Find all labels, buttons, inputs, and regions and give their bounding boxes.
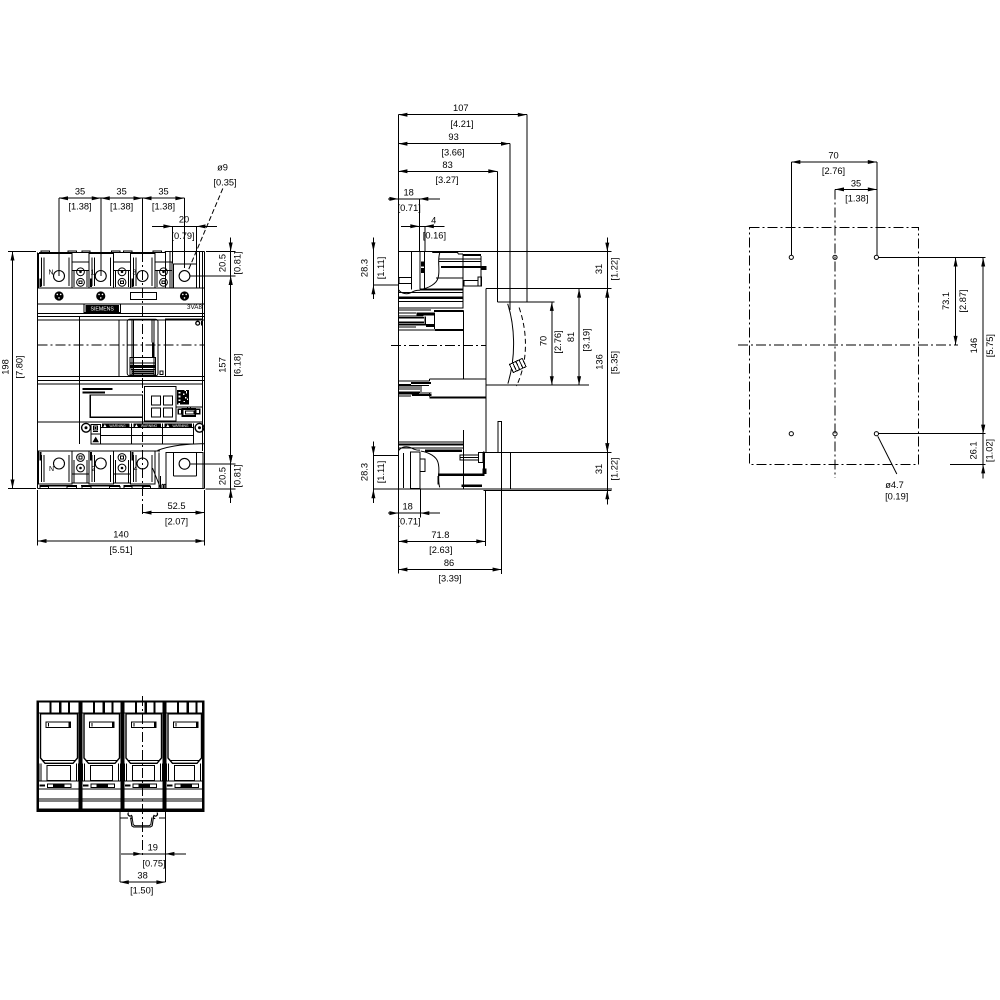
svg-text:[1.38]: [1.38] <box>110 202 133 212</box>
svg-text:3: 3 <box>133 270 137 277</box>
svg-text:83: 83 <box>442 160 452 170</box>
svg-text:[0.79]: [0.79] <box>171 231 194 241</box>
svg-text:[3.27]: [3.27] <box>435 175 458 185</box>
svg-text:[1.38]: [1.38] <box>845 193 868 203</box>
svg-text:35: 35 <box>116 187 126 197</box>
svg-text:136: 136 <box>594 354 604 370</box>
svg-text:[0.81]: [0.81] <box>233 251 243 274</box>
svg-text:[0.75]: [0.75] <box>142 858 165 868</box>
svg-text:31: 31 <box>594 464 604 474</box>
svg-text:107: 107 <box>453 103 469 113</box>
svg-text:1: 1 <box>91 270 95 277</box>
svg-text:198: 198 <box>1 359 11 375</box>
svg-text:38: 38 <box>137 871 147 881</box>
svg-text:[0.71]: [0.71] <box>397 517 420 527</box>
svg-text:[3.39]: [3.39] <box>438 573 461 583</box>
svg-text:146: 146 <box>969 338 979 354</box>
svg-text:20: 20 <box>179 214 189 224</box>
svg-text:71.8: 71.8 <box>431 530 449 540</box>
svg-text:ø4.7: ø4.7 <box>885 480 904 490</box>
svg-text:[3.66]: [3.66] <box>441 148 464 158</box>
svg-text:35: 35 <box>851 178 861 188</box>
svg-text:ø9: ø9 <box>217 163 228 173</box>
svg-text:N: N <box>48 270 53 277</box>
svg-text:18: 18 <box>403 502 413 512</box>
svg-text:81: 81 <box>566 332 576 342</box>
svg-text:[0.19]: [0.19] <box>885 492 908 502</box>
svg-text:[2.07]: [2.07] <box>165 517 188 527</box>
svg-text:35: 35 <box>75 187 85 197</box>
svg-text:20.5: 20.5 <box>218 254 228 272</box>
svg-text:93: 93 <box>448 132 458 142</box>
svg-text:[2.63]: [2.63] <box>429 545 452 555</box>
svg-text:73.1: 73.1 <box>941 292 951 310</box>
svg-text:[1.11]: [1.11] <box>376 461 386 484</box>
svg-text:[0.81]: [0.81] <box>233 464 243 487</box>
svg-text:26.1: 26.1 <box>968 441 978 459</box>
svg-text:[7.80]: [7.80] <box>15 355 25 378</box>
svg-text:70: 70 <box>828 151 838 161</box>
svg-text:28.3: 28.3 <box>360 259 370 277</box>
svg-text:[5.35]: [5.35] <box>610 351 620 374</box>
svg-text:N: N <box>49 466 54 473</box>
svg-text:[4.21]: [4.21] <box>450 119 473 129</box>
svg-text:4: 4 <box>134 466 138 473</box>
svg-text:140: 140 <box>113 530 129 540</box>
svg-text:[2.76]: [2.76] <box>553 330 563 353</box>
svg-text:[0.71]: [0.71] <box>398 203 421 213</box>
svg-text:2: 2 <box>92 466 96 473</box>
svg-text:[1.38]: [1.38] <box>68 202 91 212</box>
svg-text:[0.16]: [0.16] <box>423 231 446 241</box>
svg-text:18: 18 <box>404 187 414 197</box>
svg-text:157: 157 <box>218 357 228 373</box>
svg-text:[1.22]: [1.22] <box>610 457 620 480</box>
svg-text:3VA8: 3VA8 <box>187 304 202 311</box>
svg-text:[2.87]: [2.87] <box>958 289 968 312</box>
svg-text:[1.50]: [1.50] <box>130 886 153 896</box>
svg-text:52.5: 52.5 <box>167 501 185 511</box>
svg-text:[1.11]: [1.11] <box>376 257 386 280</box>
svg-text:[5.51]: [5.51] <box>109 545 132 555</box>
svg-text:4: 4 <box>431 215 436 225</box>
svg-text:[3.19]: [3.19] <box>582 328 592 351</box>
svg-text:[0.35]: [0.35] <box>213 178 236 188</box>
svg-text:31: 31 <box>594 264 604 274</box>
svg-text:[5.75]: [5.75] <box>985 334 995 357</box>
svg-text:[1.38]: [1.38] <box>152 202 175 212</box>
svg-text:86: 86 <box>444 558 454 568</box>
svg-text:35: 35 <box>158 187 168 197</box>
svg-text:28.3: 28.3 <box>360 463 370 481</box>
svg-text:19: 19 <box>148 842 158 852</box>
svg-text:[1.02]: [1.02] <box>985 439 995 462</box>
svg-text:70: 70 <box>539 336 549 346</box>
svg-text:SIEMENS: SIEMENS <box>91 306 115 312</box>
svg-text:[1.22]: [1.22] <box>610 257 620 280</box>
svg-text:20.5: 20.5 <box>218 467 228 485</box>
svg-text:[6.18]: [6.18] <box>233 353 243 376</box>
svg-text:[2.76]: [2.76] <box>822 166 845 176</box>
